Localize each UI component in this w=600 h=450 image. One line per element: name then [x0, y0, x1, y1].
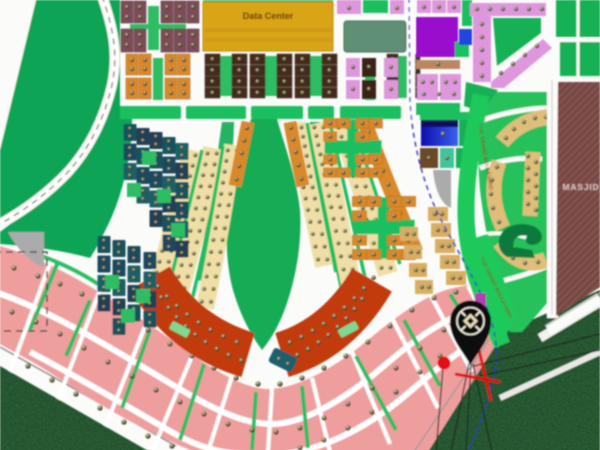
svg-text:MASJID: MASJID: [563, 182, 600, 192]
svg-text:Data Center: Data Center: [243, 11, 294, 21]
